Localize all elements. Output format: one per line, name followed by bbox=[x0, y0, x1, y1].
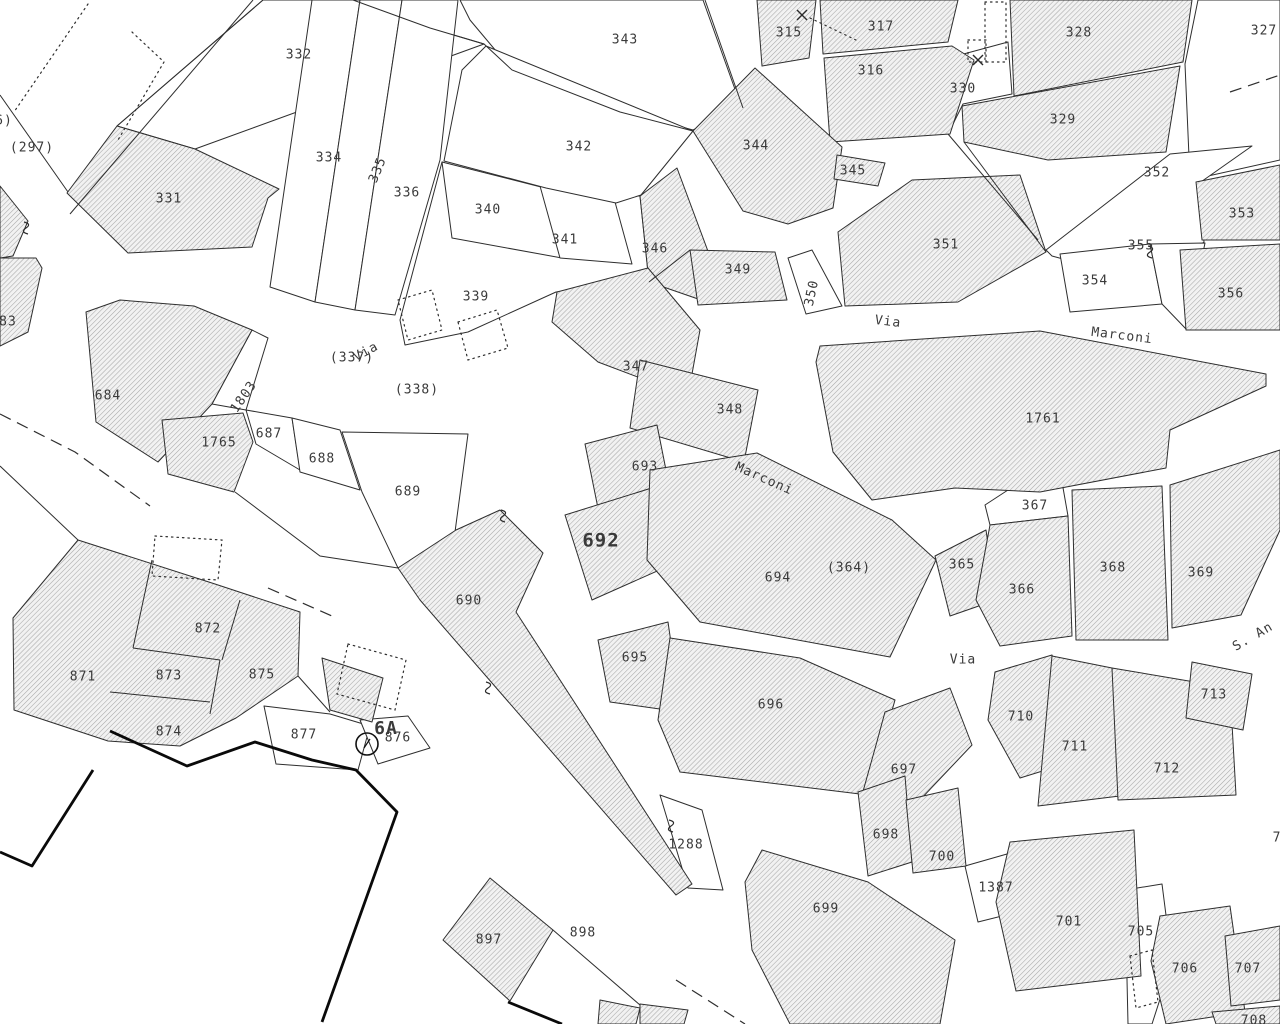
parcel-number-label: 873 bbox=[156, 669, 182, 684]
hatched-building-parcel bbox=[976, 516, 1072, 646]
parcel-number-label: 1288 bbox=[668, 838, 703, 853]
parcel-number-label: 689 bbox=[395, 485, 421, 500]
parcel-number-label: 7 bbox=[1273, 831, 1280, 846]
parcel-number-label: (297) bbox=[10, 141, 54, 156]
parcel-number-label: 708 bbox=[1241, 1014, 1267, 1024]
parcel-number-label: 692 bbox=[582, 530, 619, 552]
parcel-number-label: 355 bbox=[1128, 239, 1154, 254]
cadastral-map[interactable]: 6)(297)332343334335336342340341331344345… bbox=[0, 0, 1280, 1024]
hatched-building-parcel bbox=[858, 776, 912, 876]
parcel-number-label: 897 bbox=[476, 933, 502, 948]
parcel-number-label: 696 bbox=[758, 698, 784, 713]
parcel-number-label: 352 bbox=[1144, 166, 1170, 181]
parcel-number-label: 872 bbox=[195, 622, 221, 637]
parcel-number-label: 684 bbox=[95, 389, 121, 404]
hatched-building-parcel bbox=[996, 830, 1141, 991]
parcel-number-label: 697 bbox=[891, 763, 917, 778]
parcel-number-label: 332 bbox=[286, 48, 312, 63]
parcel-number-label: 368 bbox=[1100, 561, 1126, 576]
street-name-label: Via bbox=[950, 653, 976, 668]
parcel-number-label: 334 bbox=[316, 151, 342, 166]
parcel-number-label: 331 bbox=[156, 192, 182, 207]
parcel-number-label: 1765 bbox=[201, 436, 236, 451]
parcel-number-label: 687 bbox=[256, 427, 282, 442]
cadastral-map-canvas[interactable]: 6)(297)332343334335336342340341331344345… bbox=[0, 0, 1280, 1024]
parcel-number-label: 693 bbox=[632, 460, 658, 475]
parcel-number-label: (364) bbox=[827, 561, 871, 576]
parcel-number-label: 347 bbox=[623, 360, 649, 375]
parcel-number-label: 356 bbox=[1218, 287, 1244, 302]
parcel-number-label: 700 bbox=[929, 850, 955, 865]
parcel-number-label: 877 bbox=[291, 728, 317, 743]
parcel-number-label: 340 bbox=[475, 203, 501, 218]
parcel-number-label: 336 bbox=[394, 186, 420, 201]
parcel-number-label: 713 bbox=[1201, 688, 1227, 703]
parcel-number-label: 1761 bbox=[1025, 412, 1060, 427]
parcel-number-label: 366 bbox=[1009, 583, 1035, 598]
parcel-number-label: 710 bbox=[1008, 710, 1034, 725]
parcel-number-label: 329 bbox=[1050, 113, 1076, 128]
parcel-number-label: 365 bbox=[949, 558, 975, 573]
parcel-number-label: 345 bbox=[840, 164, 866, 179]
parcel-number-label: 875 bbox=[249, 668, 275, 683]
hatched-building-parcel bbox=[690, 250, 787, 305]
parcel-number-label: 690 bbox=[456, 594, 482, 609]
white-parcel bbox=[1060, 244, 1162, 312]
parcel-number-label: 699 bbox=[813, 902, 839, 917]
street-name-label: Via bbox=[874, 313, 902, 331]
parcel-number-label: 698 bbox=[873, 828, 899, 843]
parcel-number-label: 701 bbox=[1056, 915, 1082, 930]
parcel-number-label: 342 bbox=[566, 140, 592, 155]
parcel-number-label: 349 bbox=[725, 263, 751, 278]
parcel-number-label: 712 bbox=[1154, 762, 1180, 777]
parcel-number-label: 327 bbox=[1251, 24, 1277, 39]
parcel-number-label: 330 bbox=[950, 82, 976, 97]
parcel-number-label: 876 bbox=[385, 731, 411, 746]
parcel-number-label: 354 bbox=[1082, 274, 1108, 289]
parcel-number-label: 351 bbox=[933, 238, 959, 253]
parcel-number-label: 328 bbox=[1066, 26, 1092, 41]
parcel-number-label: 83 bbox=[0, 315, 17, 330]
parcel-number-label: 367 bbox=[1022, 499, 1048, 514]
parcel-number-label: 353 bbox=[1229, 207, 1255, 222]
parcel-number-label: (338) bbox=[395, 383, 439, 398]
parcel-number-label: 694 bbox=[765, 571, 791, 586]
parcel-number-label: 898 bbox=[570, 926, 596, 941]
parcel-number-label: 369 bbox=[1188, 566, 1214, 581]
parcel-number-label: 874 bbox=[156, 725, 182, 740]
parcel-number-label: 871 bbox=[70, 670, 96, 685]
parcel-number-label: 688 bbox=[309, 452, 335, 467]
parcel-number-label: 6) bbox=[0, 114, 13, 129]
parcel-number-label: 344 bbox=[743, 139, 769, 154]
parcel-number-label: 341 bbox=[552, 233, 578, 248]
parcel-number-label: 317 bbox=[868, 20, 894, 35]
parcel-number-label: 707 bbox=[1235, 962, 1261, 977]
parcel-number-label: 1387 bbox=[978, 881, 1013, 896]
parcel-number-label: 339 bbox=[463, 290, 489, 305]
parcel-number-label: 348 bbox=[717, 403, 743, 418]
parcel-number-label: 316 bbox=[858, 64, 884, 79]
parcel-number-label: 315 bbox=[776, 26, 802, 41]
parcel-number-label: 705 bbox=[1128, 925, 1154, 940]
parcel-number-label: 706 bbox=[1172, 962, 1198, 977]
parcel-number-label: 346 bbox=[642, 242, 668, 257]
parcel-number-label: 711 bbox=[1062, 740, 1088, 755]
parcel-number-label: 343 bbox=[612, 33, 638, 48]
parcel-number-label: 695 bbox=[622, 651, 648, 666]
